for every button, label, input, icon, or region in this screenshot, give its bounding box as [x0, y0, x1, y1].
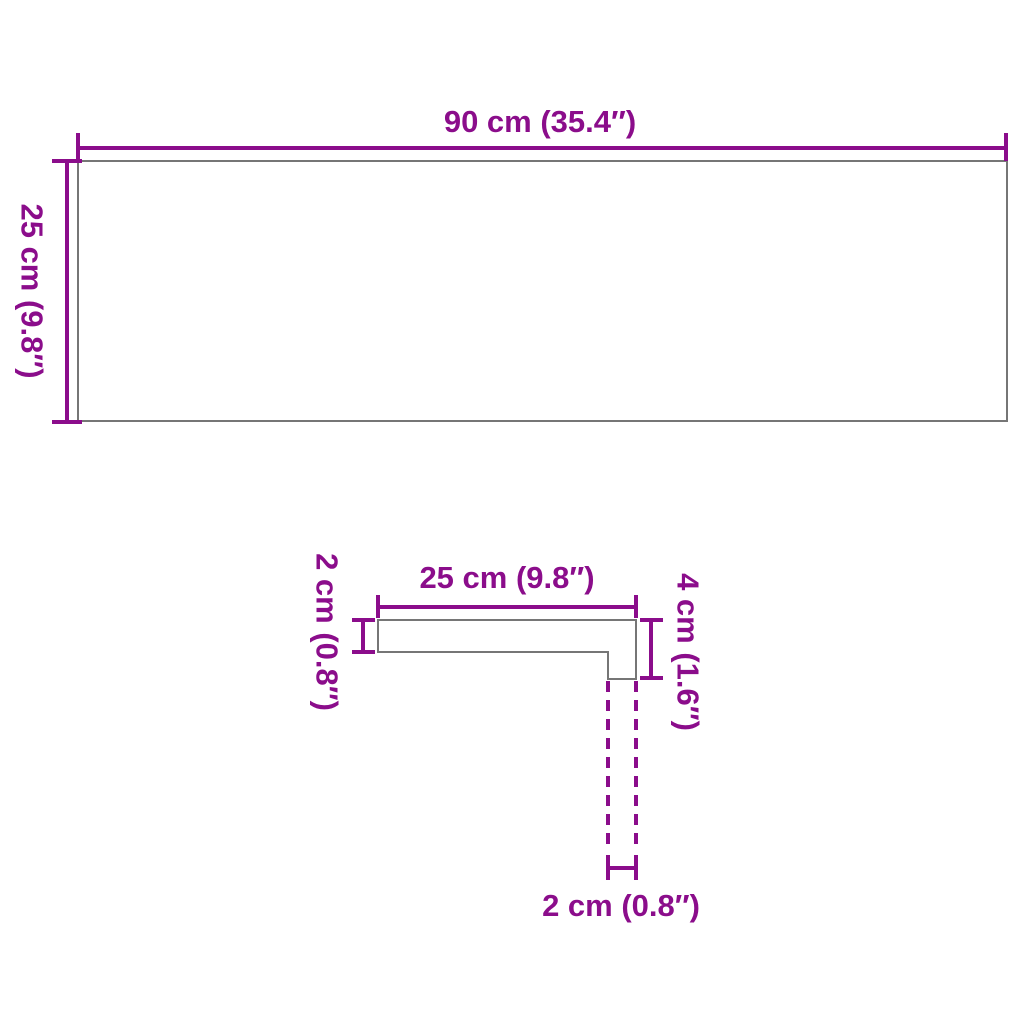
profile-width-label: 25 cm (9.8″) — [419, 560, 594, 595]
thickness-dimension-label: 2 cm (0.8″) — [310, 553, 345, 711]
top-view: 90 cm (35.4″) 25 cm (9.8″) — [15, 104, 1008, 422]
profile-view: 25 cm (9.8″) 2 cm (0.8″) 4 cm (1.6″) 2 c… — [310, 553, 706, 923]
dimension-diagram-canvas: 90 cm (35.4″) 25 cm (9.8″) 25 cm (9.8″) … — [0, 0, 1024, 1024]
width-dimension-label: 90 cm (35.4″) — [444, 104, 636, 139]
profile-height-label: 4 cm (1.6″) — [671, 573, 706, 731]
profile-outline — [378, 620, 636, 679]
top-view-panel — [78, 161, 1007, 421]
nosing-width-label: 2 cm (0.8″) — [542, 888, 700, 923]
height-dimension-label: 25 cm (9.8″) — [15, 203, 50, 378]
dimension-diagram: 90 cm (35.4″) 25 cm (9.8″) 25 cm (9.8″) … — [0, 0, 1024, 1024]
